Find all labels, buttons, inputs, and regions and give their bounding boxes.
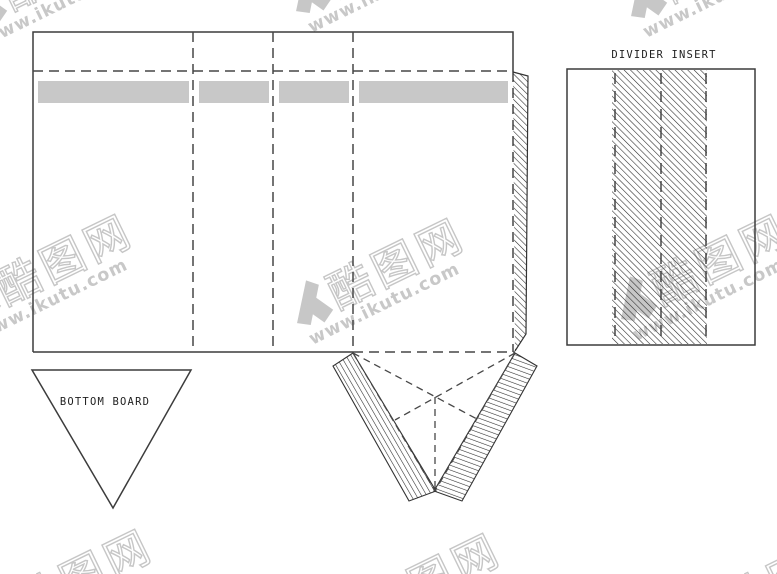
print-band-1 <box>38 81 189 103</box>
bottom-tuck <box>333 353 537 501</box>
divider-insert-title: DIVIDER INSERT <box>611 49 716 61</box>
print-band-4 <box>359 81 508 103</box>
print-band-3 <box>279 81 349 103</box>
dieline-canvas: 酷图网 www.ikutu.com 酷图网 www.ikutu.com 酷图网 … <box>0 0 777 574</box>
bottom-board-label: BOTTOM BOARD <box>60 396 150 408</box>
bottom-board-triangle <box>32 370 191 508</box>
tuck-band-left <box>333 353 436 501</box>
glue-flap <box>513 72 528 351</box>
bottom-board: BOTTOM BOARD <box>32 370 191 508</box>
main-panel-outline <box>33 32 515 352</box>
tuck-band-right <box>434 353 537 501</box>
print-band-2 <box>199 81 269 103</box>
dieline-drawing: BOTTOM BOARD DIVIDER INSERT <box>0 0 777 574</box>
divider-insert-hatch <box>612 70 707 344</box>
divider-insert: DIVIDER INSERT <box>567 49 755 345</box>
